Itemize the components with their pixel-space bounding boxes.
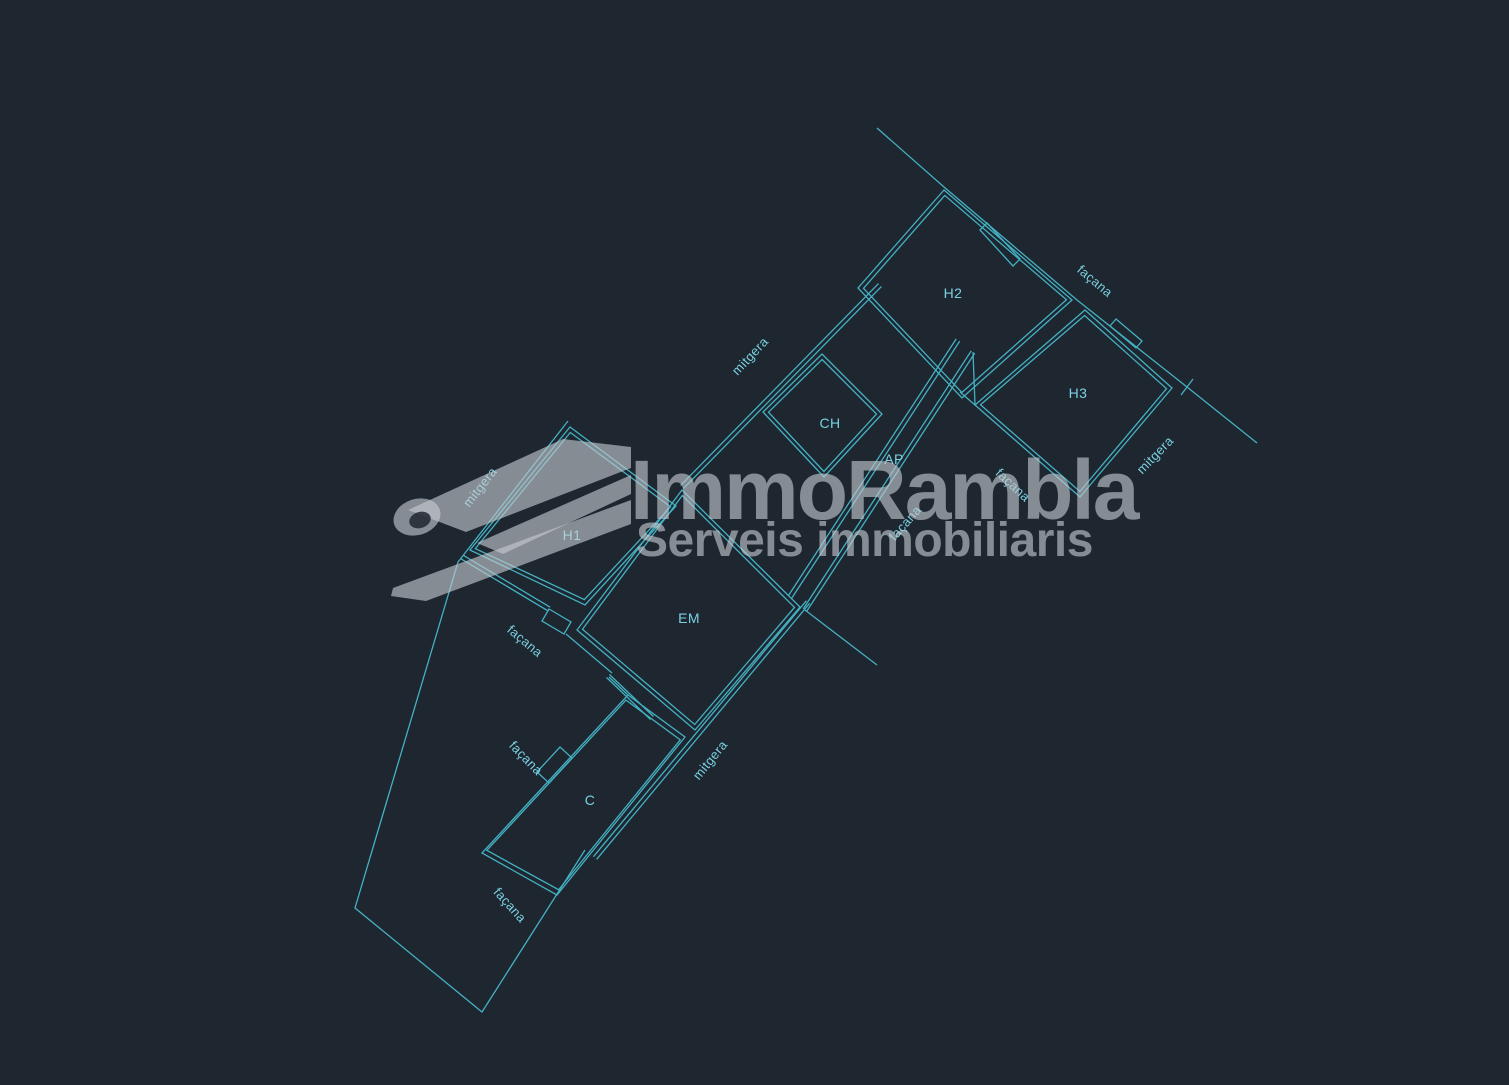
wall-notch	[1110, 319, 1142, 348]
wall-line	[805, 610, 877, 665]
room-ch-outline	[763, 354, 882, 477]
wall-line	[1181, 379, 1193, 395]
room-h2-outline	[858, 190, 1072, 398]
double-wall-line	[803, 351, 971, 609]
room-em-outline	[577, 490, 800, 730]
room-h1-inner-outline	[475, 432, 670, 599]
double-wall-line	[788, 339, 956, 596]
wall-line	[973, 352, 975, 405]
room-ch-inner-outline	[768, 359, 876, 471]
double-wall-line	[681, 284, 879, 486]
wall-notch	[542, 609, 571, 634]
floor-plan-linework	[0, 0, 1509, 1085]
room-h3-inner-outline	[980, 315, 1166, 491]
double-wall-line	[597, 603, 810, 859]
room-h3-outline	[975, 310, 1172, 497]
double-wall-line	[593, 601, 806, 857]
cad-canvas[interactable]: H2 H3 CH AP H1 EM C façana mitgera mitge…	[0, 0, 1509, 1085]
wall-line	[1187, 387, 1257, 443]
room-em-inner-outline	[582, 495, 794, 724]
room-h2-inner-outline	[863, 195, 1066, 392]
double-wall-line	[807, 353, 975, 611]
wall-line	[355, 421, 585, 1012]
double-wall-line	[683, 286, 881, 488]
wall-line	[877, 128, 1187, 387]
wall-line	[609, 677, 628, 695]
wall-notch	[980, 223, 1020, 266]
